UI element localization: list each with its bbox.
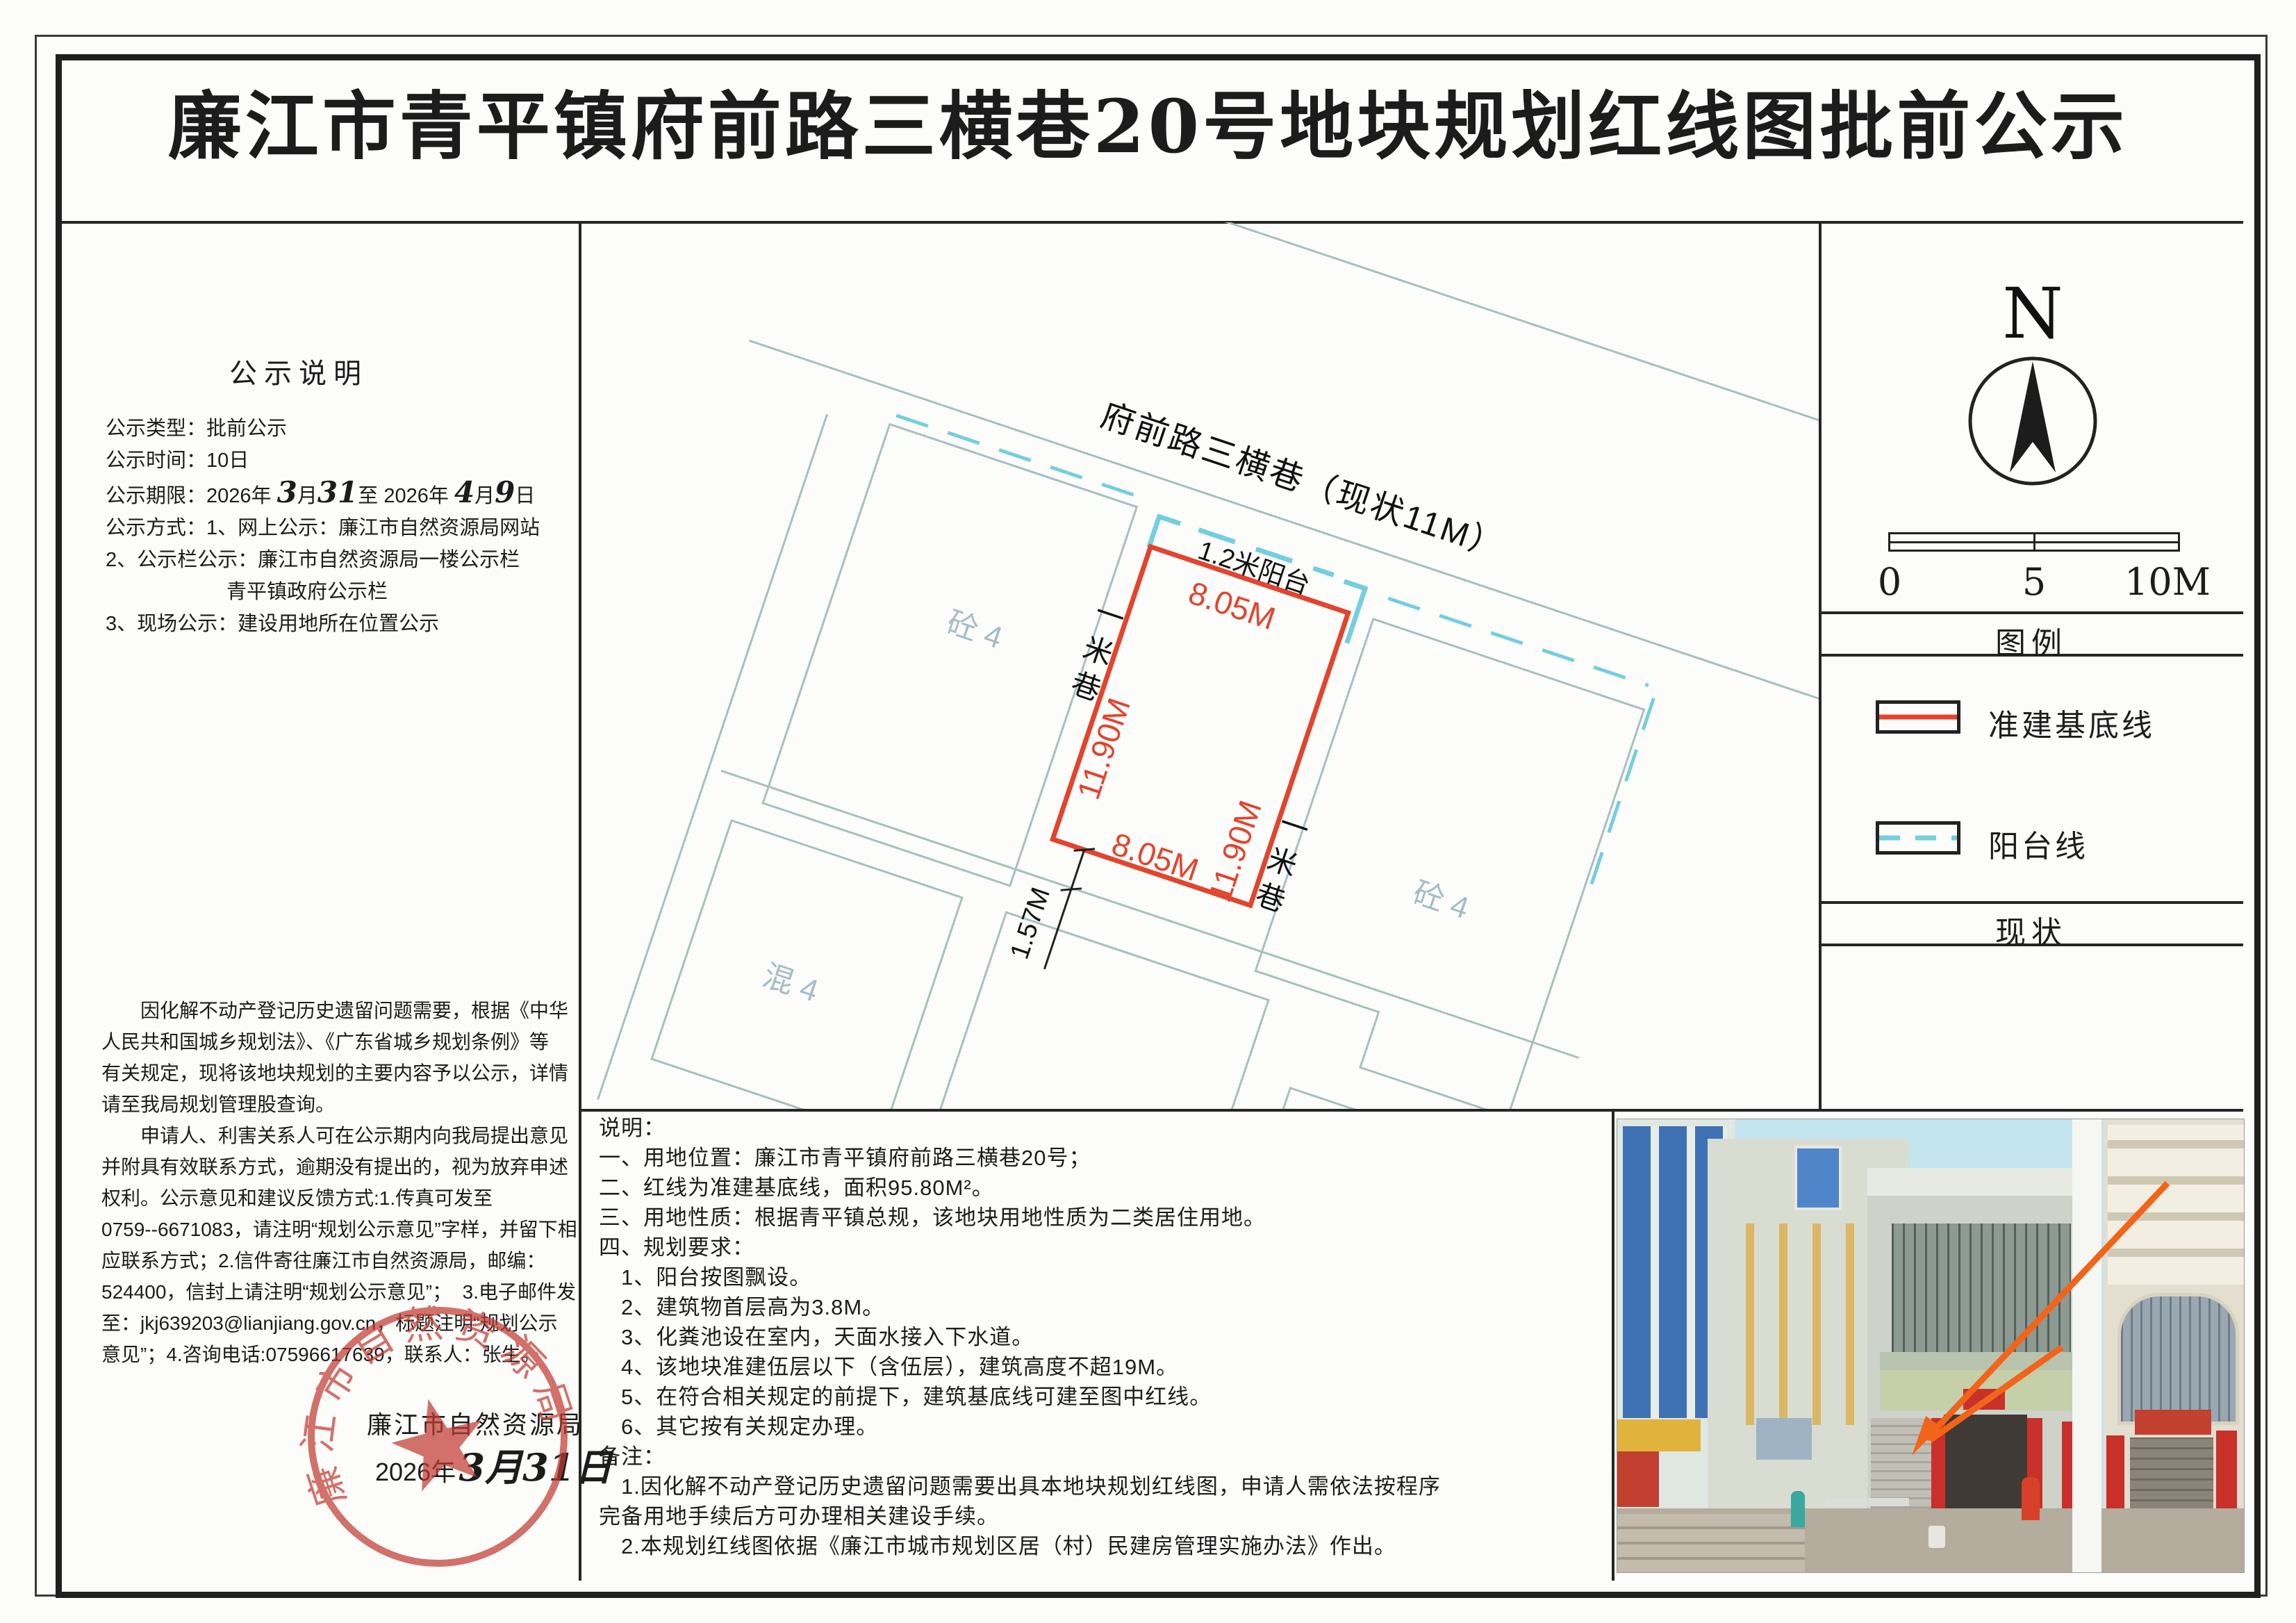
svg-text:砼 4: 砼 4 [1409,875,1473,925]
text-line: 公示类型：批前公示 [106,413,540,445]
scale-tick-10m: 10M [2122,560,2213,604]
photo-divider [1612,1109,1614,1581]
handwritten-day: 9 [495,475,515,509]
alley-label-left: 一 米 巷 [1067,595,1129,707]
handwritten-day: 31 [317,475,358,509]
legend-label-baseline: 准建基底线 [1988,700,2155,745]
text-line: 4、该地块准建伍层以下（含伍层），建筑高度不超19M。 [599,1352,1441,1382]
left-panel-heading: 公示说明 [104,351,493,391]
period-text: 月 [297,485,317,507]
text-line: 权利。公示意见和建议反馈方式:1.传真可发至 [101,1183,577,1214]
text-line: 0759--6671083，请注明“规划公示意见”字样，并留下相 [101,1214,577,1245]
dim-bottom: 8.05M [1107,825,1203,888]
text-line: 青平镇政府公示栏 [106,576,540,608]
text-line: 2、公示栏公示：廉江市自然资源局一楼公示栏 [106,544,540,576]
text-line: 备注： [599,1442,1441,1472]
text-line: 2.本规划红线图依据《廉江市城市规划区居（村）民建房管理实施办法》作出。 [599,1531,1441,1561]
text-line: 1.因化解不动产登记历史遗留问题需要出具本地块规划红线图，申请人需依法按程序 [599,1472,1441,1501]
arrow-line-long [1926,1183,2167,1439]
road-label: 府前路三横巷（现状11M） [1096,397,1509,566]
status-heading: 现状 [1820,907,2243,952]
status-header-top-line [1819,901,2243,904]
bottom-band-separator [579,1109,2243,1112]
north-label: N [2002,277,2063,354]
text-line: 3、化粪池设在室内，天面水接入下水道。 [599,1322,1441,1352]
svg-text:砼 4: 砼 4 [943,605,1007,655]
text-line: 一、用地位置：廉江市青平镇府前路三横巷20号； [599,1143,1441,1173]
north-compass: N [1942,277,2123,499]
svg-text:廉江市自然资源局: 廉江市自然资源局 [297,1296,578,1513]
text-line: 1、阳台按图飘设。 [599,1262,1441,1292]
text-line: 公示时间：10日 [106,445,540,477]
period-text: 月 [474,485,495,507]
text-line: 2、建筑物首层高为3.8M。 [599,1292,1441,1322]
scale-bar [1888,532,2180,552]
official-seal: 廉江市自然资源局 [297,1296,578,1577]
text-line: 四、规划要求： [599,1233,1441,1262]
text-line: 3、现场公示：建设用地所在位置公示 [106,608,540,640]
text-line: 并附具有效联系方式，逾期没有提出的，视为放弃申述 [101,1151,577,1183]
seal-text: 廉江市自然资源局 [297,1296,578,1513]
scale-bar-divider [2033,534,2035,550]
legend-symbol-baseline [1876,700,1960,734]
photo-arrow-annotation [1617,1119,2244,1572]
seal-star [383,1388,495,1496]
legend-label-balcony: 阳台线 [1988,821,2088,866]
handwritten-month: 4 [454,475,474,509]
legend-symbol-balcony [1876,821,1960,855]
period-text: 至 2026年 [358,485,454,507]
site-plan: 府前路三横巷（现状11M） 1.2米阳台 8.05M 8.05M 11.90M … [581,222,1819,1109]
text-line: 有关规定，现将该地块规划的主要内容予以公示，详情 [101,1057,577,1089]
text-line: 因化解不动产登记历史遗留问题需要，根据《中华 [101,995,577,1026]
notice-period-line: 公示期限：2026年 3月31至 2026年 4月9日 [106,477,540,512]
text-line: 请至我局规划管理股查询。 [101,1089,577,1120]
text-line: 完备用地手续后方可办理相关建设手续。 [599,1501,1441,1531]
north-arrow-icon [2010,361,2056,472]
text-line: 应联系方式；2.信件寄往廉江市自然资源局，邮编： [101,1245,577,1276]
handwritten-month: 3 [277,475,297,509]
scanned-planning-notice: 廉江市青平镇府前路三横巷20号地块规划红线图批前公示 公示说明 公示类型：批前公… [0,0,2296,1623]
svg-text:混 4: 混 4 [759,958,823,1008]
legend-heading: 图例 [1820,618,2243,663]
text-line: 公示方式：1、网上公示：廉江市自然资源局网站 [106,512,540,544]
dim-left: 11.90M [1070,693,1137,804]
text-line: 5、在符合相关规定的前提下，建筑基底线可建至图中红线。 [599,1382,1441,1412]
text-line: 二、红线为准建基底线，面积95.80M²。 [599,1173,1441,1203]
period-text: 日 [515,485,535,507]
notes-block: 说明： 一、用地位置：廉江市青平镇府前路三横巷20号； 二、红线为准建基底线，面… [599,1113,1441,1561]
period-text: 公示期限：2026年 [106,485,277,507]
legend-header-top-line [1819,611,2243,614]
text-line: 三、用地性质：根据青平镇总规，该地块用地性质为二类居住用地。 [599,1203,1441,1233]
text-line: 说明： [599,1113,1441,1143]
scale-tick-5: 5 [2020,560,2048,604]
status-photo [1617,1119,2245,1573]
text-line: 人民共和国城乡规划法》、《广东省城乡规划条例》等 [101,1026,577,1057]
notice-meta-block: 公示类型：批前公示 公示时间：10日 公示期限：2026年 3月31至 2026… [106,413,540,640]
right-column-divider [1819,221,1822,1112]
scale-tick-0: 0 [1876,560,1903,604]
dim-offset: 1.57M [1005,884,1056,962]
text-line: 申请人、利害关系人可在公示期内向我局提出意见 [101,1120,577,1151]
text-line: 6、其它按有关规定办理。 [599,1412,1441,1442]
page-title: 廉江市青平镇府前路三横巷20号地块规划红线图批前公示 [69,67,2227,174]
